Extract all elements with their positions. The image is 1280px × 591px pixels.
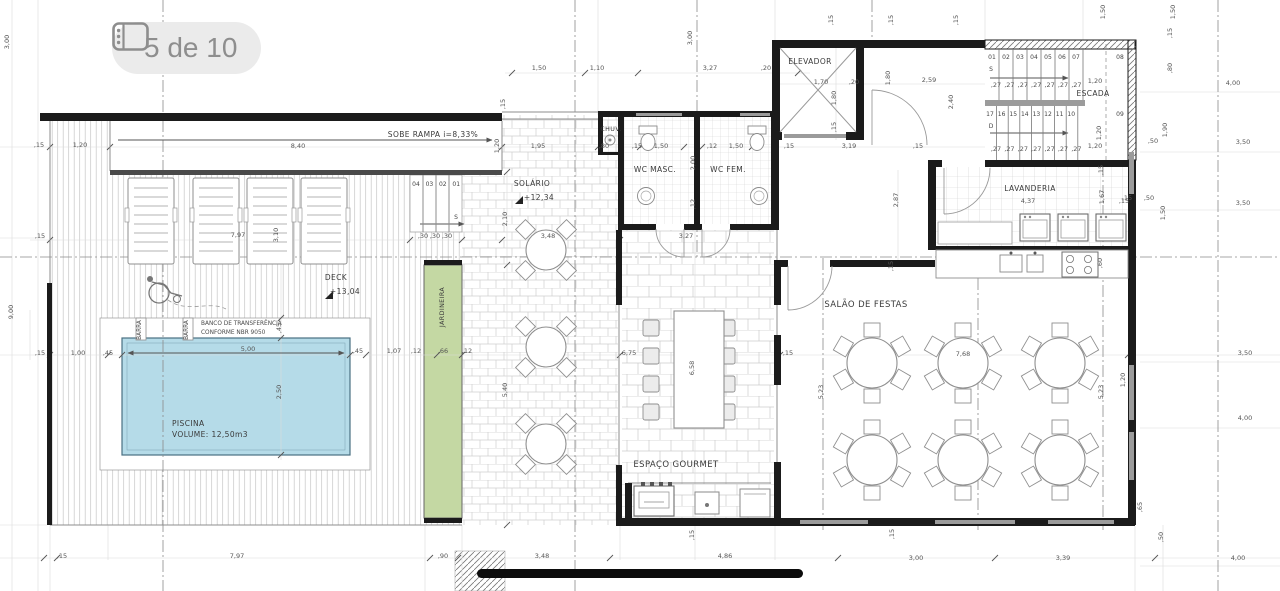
dimension-label: ,15	[57, 552, 67, 560]
dimension-label: ,15	[952, 15, 960, 25]
dimension-label: ,30	[418, 232, 428, 240]
dimension-label: ,15	[499, 99, 507, 109]
floor-plan-drawing: 3,009,00,151,208,401,201,95,15,151,00,45…	[0, 0, 1280, 591]
dimension-label: 11	[1056, 111, 1064, 118]
dimension-label: 3,50	[1236, 138, 1250, 146]
dimension-label: ,50	[1144, 194, 1154, 202]
dimension-label: 1,50	[1169, 5, 1177, 19]
dimension-label: ,15	[688, 530, 696, 540]
jardineira-label: JARDINEIRA	[439, 287, 446, 328]
dimension-label: ,50	[1148, 137, 1158, 145]
transfer-bench-note-line1: BANCO DE TRANSFERÊNCIA	[201, 319, 282, 327]
dimension-label: ,27	[1004, 145, 1014, 153]
dimension-label: 4,00	[1231, 554, 1245, 562]
elevador-label: ELEVADOR	[788, 57, 832, 66]
dimension-label: 03	[1016, 54, 1024, 61]
dimension-label: 16	[998, 111, 1006, 118]
dimension-label: ,15	[35, 232, 45, 240]
dimension-label: 3,50	[1236, 199, 1250, 207]
dimension-label: ,27	[1018, 145, 1028, 153]
gallery-counter-badge[interactable]: 5 de 10	[112, 22, 261, 74]
escada-label: ESCADA	[1076, 89, 1110, 98]
dimension-label: 7,97	[230, 552, 244, 560]
salao-label: SALÃO DE FESTAS	[824, 299, 907, 310]
dimension-label: 1,80	[830, 91, 838, 105]
dimension-label: 8,40	[291, 142, 305, 150]
dimension-label: 1,90	[1161, 123, 1169, 137]
dimension-label: 1,67	[1098, 190, 1106, 204]
deck-steps-up-label: S	[454, 214, 458, 221]
dimension-label: 3,48	[535, 552, 549, 560]
dimension-label: ,27	[991, 81, 1001, 89]
dimension-label: ,15	[888, 529, 896, 539]
dimension-label: ,80	[1166, 63, 1174, 73]
dimension-label: ,27	[1018, 81, 1028, 89]
dimension-label: 3,00	[686, 31, 694, 45]
dimension-label: ,27	[1044, 81, 1054, 89]
dimension-label: ,30	[442, 232, 452, 240]
solario-label: SOLÁRIO	[514, 179, 550, 188]
dimension-label: 4,00	[1226, 79, 1240, 87]
dimension-label: 3,48	[541, 232, 555, 240]
stair-down-label: D	[989, 123, 994, 130]
barra-label: BARRA	[137, 320, 143, 340]
dimension-label: ,15	[784, 142, 794, 150]
dimension-label: ,15	[913, 142, 923, 150]
dimension-label: 3,00	[909, 554, 923, 562]
floor-plan-viewer: 3,009,00,151,208,401,201,95,15,151,00,45…	[0, 0, 1280, 591]
dimension-label: ,45	[103, 349, 113, 357]
wc-fem-label: WC FEM.	[710, 165, 746, 174]
dimension-label: ,66	[438, 347, 448, 355]
dimension-label: 1,50	[654, 142, 668, 150]
dimension-label: ,30	[430, 232, 440, 240]
dimension-label: 15	[1009, 111, 1017, 118]
dimension-label: 1,00	[71, 349, 85, 357]
dimension-label: 7,97	[231, 231, 245, 239]
dimension-label: 9,00	[7, 305, 15, 319]
dimension-label: ,27	[1004, 81, 1014, 89]
dimension-label: 2,10	[501, 212, 509, 226]
dimension-label: 2,00	[689, 156, 697, 170]
chuv-label: CHUV.	[600, 126, 621, 133]
dimension-label: ,15	[632, 142, 642, 150]
deck-label: DECK	[325, 273, 348, 282]
dimension-label: 13	[1033, 111, 1041, 118]
dimension-label: 3,00	[3, 35, 11, 49]
dimension-label: ,15	[35, 349, 45, 357]
dimension-label: 1,20	[1095, 126, 1103, 140]
dimension-label: ,15	[1097, 165, 1105, 175]
dimension-label: ,27	[1058, 81, 1068, 89]
dimension-label: ,15	[830, 122, 838, 132]
dimension-label: 1,95	[531, 142, 545, 150]
dimension-label: ,15	[827, 15, 835, 25]
dimension-label: 6,58	[688, 361, 696, 375]
dimension-label: 3,39	[1056, 554, 1070, 562]
dimension-label: ,12	[411, 347, 421, 355]
gourmet-label: ESPAÇO GOURMET	[633, 460, 719, 470]
gallery-counter-label: 5 de 10	[144, 32, 237, 64]
stair-up-label: S	[989, 66, 993, 73]
piscina-label: PISCINA	[172, 419, 205, 428]
piscina-volume: VOLUME: 12,50m3	[172, 430, 248, 439]
ramp-note: SOBE RAMPA i=8,33%	[388, 130, 478, 139]
dimension-label: 1,50	[729, 142, 743, 150]
dimension-label: 01	[452, 181, 460, 188]
dimension-label: 2,40	[947, 95, 955, 109]
dimension-label: ,27	[1044, 145, 1054, 153]
dimension-label: 3,50	[1238, 349, 1252, 357]
dimension-label: 3,10	[272, 228, 280, 242]
dimension-label: 01	[988, 54, 996, 61]
dimension-label: 08	[1116, 54, 1124, 61]
dimension-label: 02	[1002, 54, 1010, 61]
dimension-label: 04	[1030, 54, 1038, 61]
dimension-label: 3,27	[703, 64, 717, 72]
deck-level: +13,04	[330, 287, 360, 296]
dimension-label: 1,20	[493, 139, 501, 153]
dimension-label: ,45	[353, 347, 363, 355]
dimension-label: ,27	[1071, 81, 1081, 89]
dimension-label: ,27	[1058, 145, 1068, 153]
dimension-label: 3,27	[679, 232, 693, 240]
dimension-label: 05	[1044, 54, 1052, 61]
dimension-label: 06	[1058, 54, 1066, 61]
dimension-label: 1,50	[1099, 5, 1107, 19]
dimension-label: 1,10	[590, 64, 604, 72]
dimension-label: 2,50	[275, 385, 283, 399]
dimension-label: 1,50	[532, 64, 546, 72]
dimension-label: 1,20	[73, 141, 87, 149]
dimension-label: 4,37	[1021, 197, 1035, 205]
dimension-label: 4,86	[718, 552, 732, 560]
dimension-label: 1,70	[814, 78, 828, 86]
dimension-label: 1,20	[1088, 142, 1102, 150]
solario-level: +12,34	[524, 193, 554, 202]
dimension-label: 02	[439, 181, 447, 188]
dimension-label: 12	[1044, 111, 1052, 118]
dimension-label: ,15	[783, 349, 793, 357]
wc-masc-label: WC MASC.	[634, 165, 676, 174]
dimension-label: ,15	[34, 141, 44, 149]
dimension-label: ,65	[1136, 502, 1144, 512]
dimension-label: ,12	[689, 199, 697, 209]
dimension-label: ,15	[887, 15, 895, 25]
dimension-label: ,27	[991, 145, 1001, 153]
dimension-label: ,27	[1031, 81, 1041, 89]
dimension-label: 5,23	[817, 385, 825, 399]
dimension-label: 2,59	[922, 76, 936, 84]
dimension-label: 07	[1072, 54, 1080, 61]
dimension-label: ,27	[1071, 145, 1081, 153]
dimension-label: 4,00	[1238, 414, 1252, 422]
dimension-label: ,15	[887, 261, 895, 271]
dimension-label: 5,00	[241, 345, 255, 353]
dimension-label: 10	[1067, 111, 1075, 118]
dimension-label: ,20	[849, 78, 859, 86]
dimension-label: ,27	[1031, 145, 1041, 153]
dimension-label: 1,20	[1088, 77, 1102, 85]
transfer-bench-note-line2: CONFORME NBR 9050	[201, 330, 266, 336]
dimension-label: ,12	[707, 142, 717, 150]
dimension-label: ,20	[761, 64, 771, 72]
dimension-label: ,50	[1157, 532, 1165, 542]
dimension-label: ,90	[438, 552, 448, 560]
dimension-label: 1,20	[1119, 373, 1127, 387]
dimension-label: 04	[412, 181, 420, 188]
dimension-label: 6,75	[622, 349, 636, 357]
dimension-label: 1,50	[1159, 206, 1167, 220]
dimension-label: 14	[1021, 111, 1029, 118]
dimension-label: 5,23	[1097, 385, 1105, 399]
gallery-scrollbar-thumb[interactable]	[477, 569, 803, 578]
dimension-label: ,12	[462, 347, 472, 355]
dimension-label: 03	[426, 181, 434, 188]
dimension-label: 17	[986, 111, 994, 118]
dimension-label: 1,80	[884, 71, 892, 85]
dimension-label: ,15	[1166, 28, 1174, 38]
dimension-label: 7,68	[956, 350, 970, 358]
dimension-label: ,60	[1096, 258, 1104, 268]
dimension-label: ,15	[1119, 197, 1129, 205]
dimension-label: 5,40	[501, 383, 509, 397]
dimension-label: 2,87	[892, 193, 900, 207]
barra-label: BARRA	[184, 320, 190, 340]
dimension-label: 1,07	[387, 347, 401, 355]
dimension-label: 09	[1116, 111, 1124, 118]
lavanderia-label: LAVANDERIA	[1004, 184, 1056, 193]
dimension-label: ,80	[599, 142, 609, 150]
dimension-label: 3,19	[842, 142, 856, 150]
